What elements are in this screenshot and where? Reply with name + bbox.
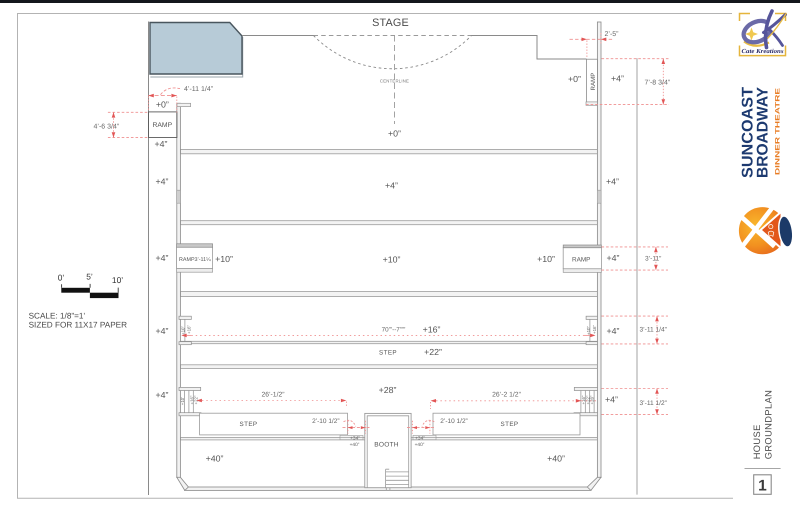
svg-text:RAMP: RAMP (590, 73, 597, 91)
svg-text:+40”: +40” (415, 442, 425, 448)
svg-text:70’”--7’””: 70’”--7’”” (382, 326, 406, 333)
svg-text:+40”: +40” (350, 442, 360, 448)
svg-text:+40”: +40” (206, 454, 224, 464)
svg-text:4’-6 3/4”: 4’-6 3/4” (94, 122, 120, 130)
svg-text:GROUNDPLAN: GROUNDPLAN (763, 390, 773, 460)
svg-text:STEP: STEP (500, 421, 518, 428)
svg-text:+4”: +4” (156, 390, 169, 400)
svg-text:+34”: +34” (415, 436, 425, 442)
svg-text:10’: 10’ (112, 275, 123, 285)
svg-text:STEP: STEP (379, 350, 397, 357)
svg-text:1: 1 (758, 477, 767, 494)
svg-text:+16”: +16” (187, 325, 192, 334)
svg-text:+4”: +4” (605, 395, 618, 405)
svg-text:+4”: +4” (156, 253, 169, 263)
svg-text:+16”: +16” (592, 325, 597, 334)
svg-text:5’: 5’ (86, 271, 93, 281)
svg-text:26’-1/2”: 26’-1/2” (261, 391, 285, 398)
svg-text:+0”: +0” (568, 74, 581, 84)
svg-text:+40”: +40” (547, 454, 565, 464)
svg-text:STAGE: STAGE (372, 17, 409, 29)
svg-text:+10”: +10” (586, 326, 591, 335)
svg-text:4’-11 1/4”: 4’-11 1/4” (184, 85, 214, 93)
svg-text:HOUSE: HOUSE (752, 424, 762, 459)
svg-text:STEP: STEP (239, 421, 257, 428)
svg-text:+4”: +4” (611, 74, 624, 84)
svg-text:+4”: +4” (155, 139, 168, 149)
svg-text:RAMP3’-11¼: RAMP3’-11¼ (179, 257, 211, 263)
svg-text:3’-11 1/4”: 3’-11 1/4” (640, 326, 667, 333)
svg-text:CENTERLINE: CENTERLINE (380, 79, 409, 84)
svg-text:SIZED FOR 11X17 PAPER: SIZED FOR 11X17 PAPER (29, 320, 128, 329)
svg-text:+28”: +28” (590, 395, 595, 404)
svg-text:+16”: +16” (423, 324, 441, 334)
svg-text:RAMP: RAMP (152, 122, 172, 129)
svg-text:26’-2 1/2”: 26’-2 1/2” (492, 392, 521, 399)
svg-text:+10”: +10” (180, 326, 185, 335)
svg-text:+4”: +4” (606, 177, 619, 187)
svg-text:BOOTH: BOOTH (374, 441, 398, 448)
svg-text:3’-11 1/2”: 3’-11 1/2” (640, 400, 667, 407)
svg-text:+10’: +10’ (180, 397, 185, 405)
svg-text:+34”: +34” (350, 436, 360, 442)
svg-text:+28”: +28” (379, 385, 397, 395)
svg-text:Cate Kreations: Cate Kreations (742, 48, 785, 55)
svg-text:+4”: +4” (385, 181, 398, 191)
svg-text:+10”: +10” (215, 254, 233, 264)
svg-text:RAMP: RAMP (572, 256, 590, 263)
svg-text:2’-10 1/2”: 2’-10 1/2” (312, 418, 339, 425)
svg-text:+10”: +10” (383, 254, 401, 264)
svg-text:+0”: +0” (388, 129, 401, 139)
svg-text:3’-11”: 3’-11” (645, 256, 661, 263)
svg-text:+4”: +4” (607, 253, 620, 263)
svg-text:SCALE: 1/8”=1’: SCALE: 1/8”=1’ (29, 311, 86, 320)
svg-text:+0”: +0” (156, 99, 169, 109)
svg-text:2’-5”: 2’-5” (605, 31, 620, 38)
svg-text:BROADWAY: BROADWAY (755, 86, 772, 178)
svg-text:DINNER THEATRE: DINNER THEATRE (775, 87, 782, 175)
svg-text:+4”: +4” (156, 326, 169, 336)
svg-text:+4”: +4” (156, 177, 169, 187)
svg-text:2’-10 1/2”: 2’-10 1/2” (440, 418, 467, 425)
svg-text:+10”: +10” (537, 254, 555, 264)
svg-text:7’-8 3/4”: 7’-8 3/4” (645, 79, 671, 87)
svg-text:+4”: +4” (607, 326, 620, 336)
svg-text:0’: 0’ (58, 272, 65, 282)
svg-text:+22”: +22” (424, 347, 442, 357)
svg-text:+22”: +22” (194, 395, 199, 404)
